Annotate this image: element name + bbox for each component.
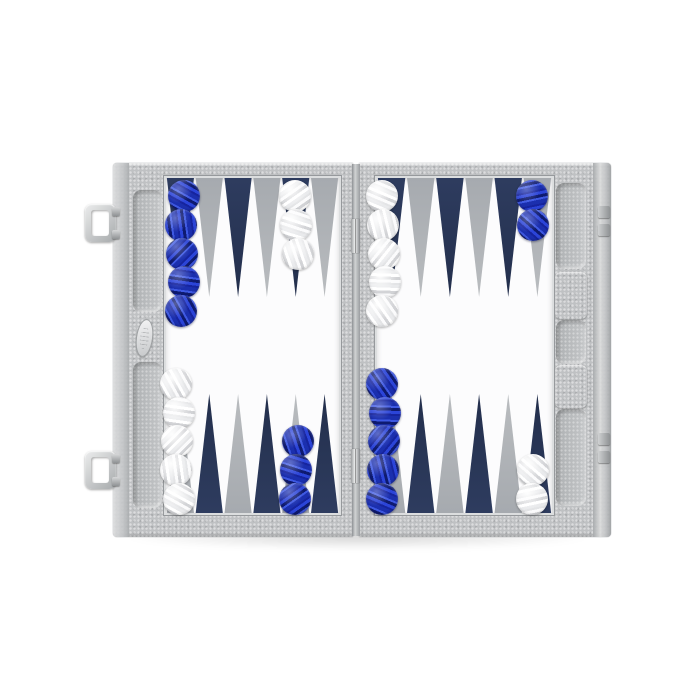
checker-blue	[282, 425, 314, 457]
checker-blue	[279, 483, 311, 515]
checker-white	[366, 295, 398, 327]
checker-blue	[517, 209, 549, 241]
checker-white	[160, 368, 192, 400]
point-bottom-4	[253, 394, 282, 513]
catch-tab	[598, 206, 610, 218]
latch-hinge-knuckle	[112, 230, 120, 239]
checker-blue	[369, 397, 401, 429]
checker-blue	[366, 368, 398, 400]
checker-blue	[280, 454, 312, 486]
checker-white	[163, 483, 195, 515]
point-bottom-6	[310, 394, 339, 513]
checker-white	[161, 425, 193, 457]
hinge-top	[351, 219, 360, 253]
point-top-9	[435, 178, 464, 297]
checker-white	[279, 180, 311, 212]
catch-tab	[598, 224, 610, 236]
checker-white	[368, 238, 400, 270]
checker-blue	[168, 180, 200, 212]
checker-white	[366, 180, 398, 212]
point-bottom-9	[435, 394, 464, 513]
latch-top	[85, 204, 116, 242]
hinge-bottom	[351, 449, 360, 483]
checker-white	[517, 454, 549, 486]
checker-blue	[166, 238, 198, 270]
catch-tab	[598, 451, 610, 463]
catch-top	[598, 206, 611, 236]
board-layer	[0, 0, 700, 700]
checker-white	[280, 209, 312, 241]
checker-blue	[367, 454, 399, 486]
checker-white	[516, 483, 548, 515]
catch-bottom	[598, 433, 611, 463]
point-top-4	[253, 178, 282, 297]
point-top-3	[224, 178, 253, 297]
checker-blue	[165, 209, 197, 241]
checker-white	[163, 397, 195, 429]
checker-blue	[165, 295, 197, 327]
point-bottom-3	[224, 394, 253, 513]
latch-hinge-knuckle	[112, 207, 120, 216]
point-bottom-8	[406, 394, 435, 513]
checker-blue	[168, 266, 200, 298]
point-top-10	[465, 178, 494, 297]
point-top-8	[406, 178, 435, 297]
checker-white	[282, 238, 314, 270]
latch-opening	[91, 210, 109, 236]
point-bottom-10	[465, 394, 494, 513]
latch-bottom	[85, 451, 116, 489]
catch-tab	[598, 433, 610, 445]
latch-opening	[91, 457, 109, 483]
latch-hinge-knuckle	[112, 454, 120, 463]
checker-white	[367, 209, 399, 241]
checker-blue	[516, 180, 548, 212]
point-bottom-2	[195, 394, 224, 513]
latch-hinge-knuckle	[112, 477, 120, 486]
backgammon-case-photo	[0, 0, 700, 700]
point-top-6	[310, 178, 339, 297]
checker-blue	[366, 483, 398, 515]
checker-white	[369, 266, 401, 298]
